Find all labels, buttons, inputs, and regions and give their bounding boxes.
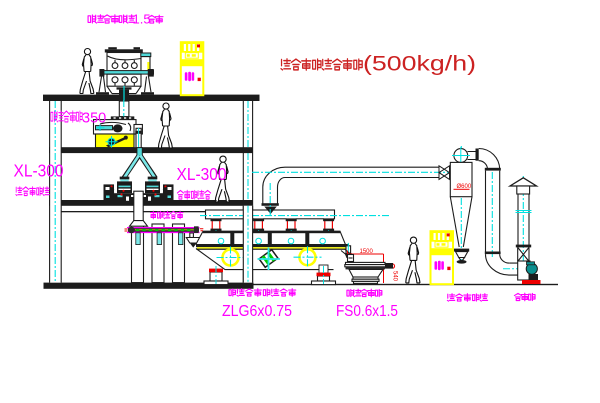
svg-text:ZLG6x0.75: ZLG6x0.75 xyxy=(222,303,292,320)
svg-text:1500: 1500 xyxy=(360,249,374,255)
svg-text:FS0.6x1.5: FS0.6x1.5 xyxy=(336,303,398,320)
svg-text:XL-300: XL-300 xyxy=(14,161,64,181)
svg-text:540: 540 xyxy=(392,271,398,282)
svg-text:1.5: 1.5 xyxy=(133,12,151,27)
svg-text:XL-300: XL-300 xyxy=(177,164,227,184)
svg-text:350: 350 xyxy=(82,111,106,127)
svg-text:(500kg/h): (500kg/h) xyxy=(363,53,476,76)
